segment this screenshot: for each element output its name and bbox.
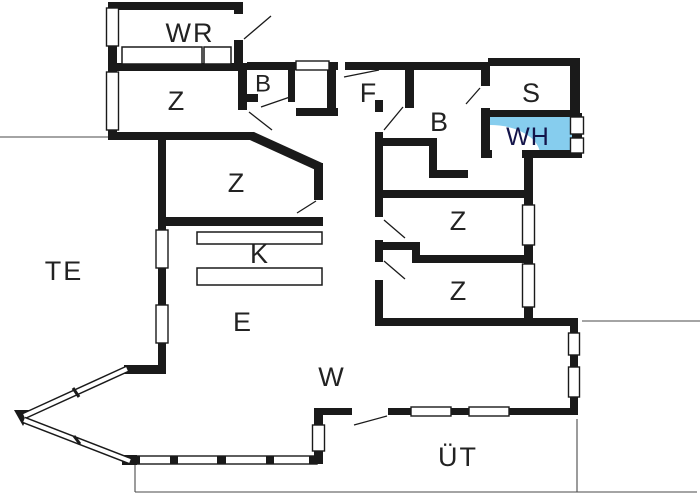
door-b-small <box>261 97 290 107</box>
door-ut <box>354 416 387 425</box>
room-label-z-top-left: Z <box>168 86 187 116</box>
door-b-bath <box>384 107 403 130</box>
window-wr-left <box>107 8 119 46</box>
window-wh-2 <box>571 138 584 153</box>
window-z2-right <box>523 264 535 307</box>
room-label-s: S <box>522 78 542 108</box>
room-label-z-right-2: Z <box>450 276 469 306</box>
room-label-ut: ÜT <box>438 442 478 472</box>
door-z-right-2 <box>384 261 405 279</box>
window-w-step <box>313 425 325 451</box>
window-w-right-1 <box>569 333 580 355</box>
window-w-right-2 <box>569 367 580 397</box>
room-label-f: F <box>360 78 379 108</box>
window-ut-1 <box>411 407 451 416</box>
window-z1-right <box>523 205 535 245</box>
window-te-2 <box>156 305 168 343</box>
room-label-b-bath: B <box>430 107 450 137</box>
kitchen-counter-2 <box>197 268 322 285</box>
floor-plan-canvas: WR Z B F B S WH Z K TE Z Z E W ÜT <box>0 0 700 500</box>
terrace-outlines <box>0 137 700 492</box>
door-s <box>466 88 480 104</box>
door-entrance-f <box>344 70 379 77</box>
room-label-e: E <box>233 307 253 337</box>
room-label-k: K <box>250 239 270 269</box>
room-label-te: TE <box>45 256 84 286</box>
window-top-niche <box>296 61 329 70</box>
door-wr <box>244 16 271 39</box>
window-te-1 <box>156 230 168 268</box>
door-z-mid-left <box>297 201 316 213</box>
window-wh-1 <box>571 117 584 134</box>
room-label-b-small: B <box>255 71 273 98</box>
bay-window <box>24 369 130 461</box>
wr-closet-1 <box>122 47 202 64</box>
room-label-z-right-1: Z <box>450 206 469 236</box>
window-ut-2 <box>469 407 509 416</box>
room-label-wh: WH <box>506 123 550 151</box>
room-label-w: W <box>318 362 345 392</box>
door-z-right-1 <box>384 220 405 238</box>
room-label-z-mid-left: Z <box>228 168 247 198</box>
door-z-top-left <box>249 112 272 130</box>
room-label-wr: WR <box>166 18 215 48</box>
floor-plan-drawing: WR Z B F B S WH Z K TE Z Z E W ÜT <box>0 0 700 500</box>
wr-closet-2 <box>204 47 231 64</box>
window-z-left <box>107 72 119 130</box>
room-labels: WR Z B F B S WH Z K TE Z Z E W ÜT <box>45 18 550 472</box>
